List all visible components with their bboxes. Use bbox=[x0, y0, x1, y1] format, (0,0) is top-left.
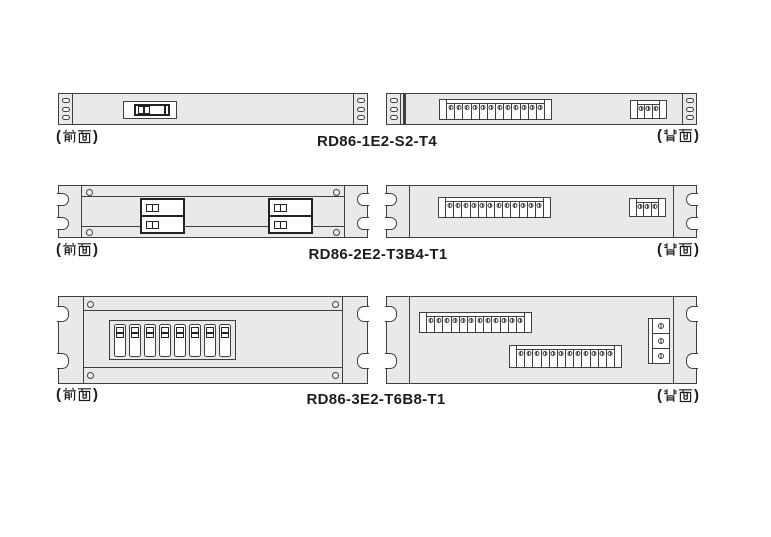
ear-hole bbox=[357, 115, 365, 120]
screw-icon bbox=[513, 105, 518, 110]
screw-icon bbox=[87, 372, 94, 379]
bracket-notch bbox=[385, 353, 397, 369]
bracket-notch bbox=[385, 193, 397, 206]
kanji-hai-icon bbox=[663, 128, 678, 143]
terminal bbox=[462, 202, 470, 217]
terminal bbox=[427, 317, 435, 332]
screw-icon bbox=[472, 203, 477, 208]
ear-hole bbox=[686, 98, 694, 103]
mounting-ear-right bbox=[353, 94, 367, 124]
terminal-endcap bbox=[614, 346, 621, 367]
terminal bbox=[468, 317, 476, 332]
terminal bbox=[455, 104, 463, 119]
terminal bbox=[653, 105, 659, 118]
rocker-switch bbox=[146, 204, 159, 212]
mounting-ear-left bbox=[387, 94, 401, 124]
top-rail bbox=[84, 310, 342, 311]
screw-icon bbox=[522, 105, 527, 110]
bracket-notch bbox=[57, 217, 69, 230]
screw-icon bbox=[639, 106, 644, 111]
kanji-zen-icon bbox=[62, 242, 77, 257]
screw-icon bbox=[567, 351, 572, 356]
kanji-zen-icon bbox=[62, 387, 77, 402]
back-panel-2u bbox=[386, 185, 697, 238]
screw-icon bbox=[332, 301, 339, 308]
ear-hole bbox=[686, 115, 694, 120]
kanji-hai-icon bbox=[663, 242, 678, 257]
screw-icon bbox=[444, 318, 449, 323]
paren-close: ) bbox=[92, 385, 99, 404]
rack-panel-diagram: ( ) RD86-1E2-S2-T4 ( ) bbox=[0, 0, 771, 537]
switch-divider bbox=[164, 104, 166, 116]
terminal-endcap bbox=[440, 100, 447, 119]
toggle-actuator bbox=[176, 327, 184, 338]
terminal-endcap bbox=[630, 199, 637, 216]
terminal-endcap bbox=[524, 313, 531, 332]
paren-close: ) bbox=[693, 126, 700, 145]
toggle-switch bbox=[189, 324, 201, 357]
front-view-label: ( ) bbox=[55, 240, 99, 259]
bracket-notch bbox=[357, 353, 369, 369]
paren-close: ) bbox=[693, 386, 700, 405]
terminal bbox=[566, 350, 574, 367]
paren-open: ( bbox=[55, 240, 62, 259]
mounting-bracket-left bbox=[387, 297, 410, 383]
breaker bbox=[270, 200, 311, 217]
ear-hole bbox=[62, 115, 70, 120]
kanji-men-icon bbox=[678, 242, 693, 257]
bracket-notch bbox=[57, 353, 69, 369]
screw-icon bbox=[534, 351, 539, 356]
screw-icon bbox=[530, 105, 535, 110]
bracket-notch bbox=[357, 306, 369, 322]
screw-icon bbox=[502, 318, 507, 323]
screw-icon bbox=[493, 318, 498, 323]
mounting-ear-right bbox=[682, 94, 696, 124]
bracket-notch bbox=[686, 353, 698, 369]
toggle-actuator bbox=[221, 327, 229, 338]
mounting-bracket-right bbox=[344, 186, 367, 237]
toggle-actuator bbox=[206, 327, 214, 338]
kanji-hai-icon bbox=[663, 388, 678, 403]
terminal bbox=[509, 317, 517, 332]
toggle-switch bbox=[159, 324, 171, 357]
back-view-label: ( ) bbox=[620, 386, 700, 405]
screw-icon bbox=[543, 351, 548, 356]
terminal-block-12 bbox=[419, 312, 532, 333]
screw-icon bbox=[512, 203, 517, 208]
paren-open: ( bbox=[656, 240, 663, 259]
toggle-actuator bbox=[116, 327, 124, 338]
ear-hole bbox=[390, 107, 398, 112]
screw-icon bbox=[521, 203, 526, 208]
terminal bbox=[472, 104, 480, 119]
screw-icon bbox=[489, 105, 494, 110]
screw-icon bbox=[658, 323, 664, 329]
terminal bbox=[503, 202, 511, 217]
ear-hole bbox=[390, 98, 398, 103]
kanji-men-icon bbox=[77, 242, 92, 257]
bracket-notch bbox=[686, 306, 698, 322]
terminal-endcap bbox=[420, 313, 427, 332]
terminal-block-12 bbox=[438, 197, 551, 218]
switch-bank bbox=[109, 320, 236, 360]
screw-icon bbox=[86, 189, 93, 196]
terminal bbox=[512, 104, 520, 119]
terminal-block-12 bbox=[509, 345, 622, 368]
terminal bbox=[476, 317, 484, 332]
screw-icon bbox=[505, 105, 510, 110]
screw-icon bbox=[658, 338, 664, 344]
bracket-notch bbox=[357, 193, 369, 206]
bracket-notch bbox=[686, 193, 698, 206]
screw-icon bbox=[529, 203, 534, 208]
mounting-bracket-right bbox=[673, 186, 696, 237]
bracket-notch bbox=[357, 217, 369, 230]
terminal-endcap bbox=[439, 198, 446, 217]
toggle-actuator bbox=[146, 327, 154, 338]
bracket-notch bbox=[385, 217, 397, 230]
mounting-bracket-left bbox=[387, 186, 410, 237]
screw-icon bbox=[86, 229, 93, 236]
screw-icon bbox=[461, 318, 466, 323]
front-panel-2u bbox=[58, 185, 368, 238]
kanji-men-icon bbox=[77, 129, 92, 144]
terminal bbox=[542, 350, 550, 367]
terminal-block-3 bbox=[629, 198, 666, 217]
front-panel-3u bbox=[58, 296, 368, 384]
terminal bbox=[574, 350, 582, 367]
screw-icon bbox=[485, 318, 490, 323]
breaker bbox=[142, 217, 183, 232]
terminal bbox=[495, 202, 503, 217]
bracket-notch bbox=[57, 193, 69, 206]
screw-icon bbox=[448, 105, 453, 110]
terminal-endcap bbox=[658, 199, 665, 216]
mounting-bracket-right bbox=[673, 297, 696, 383]
screw-icon bbox=[658, 353, 664, 359]
terminal-block-vertical-3 bbox=[648, 318, 670, 364]
terminal bbox=[435, 317, 443, 332]
rocker-switch bbox=[274, 204, 287, 212]
panel-seam bbox=[403, 94, 406, 124]
terminal bbox=[454, 202, 462, 217]
top-rail bbox=[82, 196, 344, 197]
terminal bbox=[638, 105, 645, 118]
screw-icon bbox=[646, 106, 651, 111]
terminal bbox=[492, 317, 500, 332]
breaker bbox=[270, 217, 311, 232]
paren-open: ( bbox=[656, 126, 663, 145]
terminal bbox=[443, 317, 451, 332]
mounting-bracket-left bbox=[59, 297, 84, 383]
screw-icon bbox=[496, 203, 501, 208]
screw-icon bbox=[526, 351, 531, 356]
screw-icon bbox=[464, 105, 469, 110]
rocker-switch bbox=[146, 221, 159, 229]
screw-icon bbox=[453, 318, 458, 323]
paren-close: ) bbox=[92, 127, 99, 146]
toggle-switch bbox=[219, 324, 231, 357]
terminal bbox=[645, 105, 652, 118]
screw-icon bbox=[480, 203, 485, 208]
screw-icon bbox=[592, 351, 597, 356]
terminal-endcap bbox=[544, 100, 551, 119]
back-panel-3u bbox=[386, 296, 697, 384]
terminal bbox=[528, 202, 536, 217]
screw-icon bbox=[638, 204, 643, 209]
terminal bbox=[537, 104, 544, 119]
terminal bbox=[488, 104, 496, 119]
screw-icon bbox=[583, 351, 588, 356]
terminal bbox=[550, 350, 558, 367]
ear-hole bbox=[357, 107, 365, 112]
rocker-switch bbox=[138, 106, 150, 114]
terminal bbox=[536, 202, 543, 217]
terminal bbox=[607, 350, 614, 367]
terminal bbox=[652, 203, 658, 216]
screw-icon bbox=[455, 203, 460, 208]
screw-icon bbox=[436, 318, 441, 323]
screw-icon bbox=[333, 229, 340, 236]
screw-icon bbox=[333, 189, 340, 196]
model-number: RD86-2E2-T3B4-T1 bbox=[228, 246, 528, 263]
toggle-switch bbox=[204, 324, 216, 357]
breaker-pair bbox=[140, 198, 185, 234]
screw-icon bbox=[608, 351, 613, 356]
terminal bbox=[599, 350, 607, 367]
screw-icon bbox=[488, 203, 493, 208]
terminal bbox=[496, 104, 504, 119]
screw-icon bbox=[538, 105, 543, 110]
toggle-switch bbox=[144, 324, 156, 357]
ear-hole bbox=[357, 98, 365, 103]
front-panel-1u bbox=[58, 93, 368, 125]
screw-icon bbox=[510, 318, 515, 323]
terminal bbox=[591, 350, 599, 367]
back-view-label: ( ) bbox=[620, 126, 700, 145]
paren-open: ( bbox=[55, 385, 62, 404]
screw-icon bbox=[463, 203, 468, 208]
toggle-actuator bbox=[191, 327, 199, 338]
back-view-label: ( ) bbox=[620, 240, 700, 259]
ear-hole bbox=[390, 115, 398, 120]
terminal bbox=[484, 317, 492, 332]
terminal bbox=[446, 202, 454, 217]
terminal bbox=[452, 317, 460, 332]
screw-icon bbox=[428, 318, 433, 323]
terminal bbox=[504, 104, 512, 119]
screw-icon bbox=[551, 351, 556, 356]
terminal bbox=[480, 104, 488, 119]
terminal bbox=[525, 350, 533, 367]
bracket-notch bbox=[385, 306, 397, 322]
terminal bbox=[517, 350, 525, 367]
terminal bbox=[582, 350, 590, 367]
kanji-zen-icon bbox=[62, 129, 77, 144]
terminal bbox=[517, 317, 524, 332]
front-view-label: ( ) bbox=[55, 385, 99, 404]
screw-icon bbox=[518, 351, 523, 356]
terminal bbox=[520, 202, 528, 217]
bracket-notch bbox=[57, 306, 69, 322]
terminal bbox=[637, 203, 644, 216]
terminal bbox=[644, 203, 651, 216]
terminal bbox=[487, 202, 495, 217]
terminal bbox=[533, 350, 541, 367]
ear-hole bbox=[62, 98, 70, 103]
terminal-block-12 bbox=[439, 99, 552, 120]
bracket-notch bbox=[686, 217, 698, 230]
ear-hole bbox=[62, 107, 70, 112]
breaker bbox=[142, 200, 183, 217]
back-panel-1u bbox=[386, 93, 697, 125]
terminal bbox=[521, 104, 529, 119]
kanji-men-icon bbox=[77, 387, 92, 402]
mounting-bracket-right bbox=[342, 297, 367, 383]
paren-open: ( bbox=[656, 386, 663, 405]
toggle-actuator bbox=[161, 327, 169, 338]
terminal-endcap bbox=[659, 101, 666, 118]
screw-icon bbox=[600, 351, 605, 356]
terminal-endcap bbox=[510, 346, 517, 367]
screw-icon bbox=[645, 204, 650, 209]
terminal bbox=[653, 349, 669, 363]
toggle-switch bbox=[129, 324, 141, 357]
bottom-rail bbox=[84, 367, 342, 368]
paren-close: ) bbox=[92, 240, 99, 259]
terminal bbox=[460, 317, 468, 332]
screw-icon bbox=[456, 105, 461, 110]
paren-open: ( bbox=[55, 127, 62, 146]
kanji-men-icon bbox=[678, 388, 693, 403]
ear-hole bbox=[686, 107, 694, 112]
model-number: RD86-3E2-T6B8-T1 bbox=[226, 391, 526, 408]
toggle-switch bbox=[114, 324, 126, 357]
screw-icon bbox=[504, 203, 509, 208]
mounting-ear-left bbox=[59, 94, 73, 124]
screw-icon bbox=[87, 301, 94, 308]
terminal bbox=[471, 202, 479, 217]
terminal bbox=[511, 202, 519, 217]
terminal bbox=[501, 317, 509, 332]
terminal bbox=[653, 319, 669, 334]
breaker-pair bbox=[268, 198, 313, 234]
front-view-label: ( ) bbox=[55, 127, 99, 146]
rocker-switch bbox=[274, 221, 287, 229]
terminal-endcap bbox=[543, 198, 550, 217]
screw-icon bbox=[473, 105, 478, 110]
screw-icon bbox=[652, 204, 657, 209]
mounting-bracket-left bbox=[59, 186, 82, 237]
screw-icon bbox=[575, 351, 580, 356]
kanji-men-icon bbox=[678, 128, 693, 143]
terminal bbox=[558, 350, 566, 367]
terminal bbox=[529, 104, 537, 119]
terminal bbox=[479, 202, 487, 217]
terminal bbox=[653, 334, 669, 349]
toggle-actuator bbox=[131, 327, 139, 338]
toggle-switch bbox=[174, 324, 186, 357]
screw-icon bbox=[469, 318, 474, 323]
screw-icon bbox=[497, 105, 502, 110]
screw-icon bbox=[477, 318, 482, 323]
screw-icon bbox=[332, 372, 339, 379]
screw-icon bbox=[559, 351, 564, 356]
terminal bbox=[447, 104, 455, 119]
screw-icon bbox=[518, 318, 523, 323]
switch-module bbox=[123, 101, 177, 119]
screw-icon bbox=[653, 106, 658, 111]
terminal-endcap bbox=[631, 101, 638, 118]
paren-close: ) bbox=[693, 240, 700, 259]
screw-icon bbox=[481, 105, 486, 110]
terminal bbox=[463, 104, 471, 119]
terminal-block-3 bbox=[630, 100, 667, 119]
screw-icon bbox=[537, 203, 542, 208]
model-number: RD86-1E2-S2-T4 bbox=[227, 133, 527, 150]
screw-icon bbox=[447, 203, 452, 208]
